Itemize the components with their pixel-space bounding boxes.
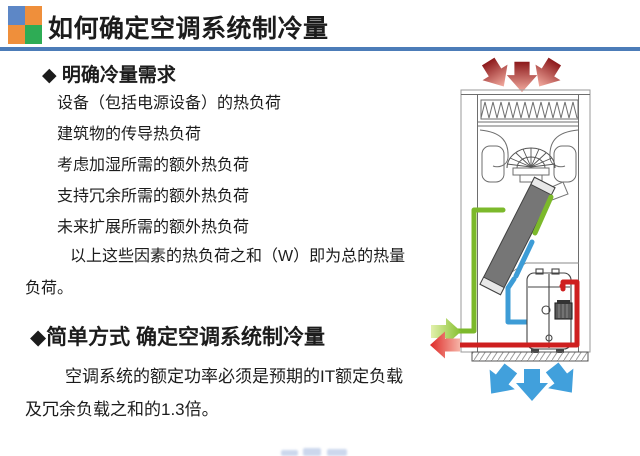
list-item: 未来扩展所需的额外热负荷 [57,212,427,243]
air-filter-icon [481,100,578,119]
section2-heading: ◆简单方式 确定空调系统制冷量 [30,321,325,351]
slide-title: 如何确定空调系统制冷量 [48,9,329,45]
list-item: 支持冗余所需的额外热负荷 [57,181,427,212]
logo-square-orange-top [25,6,42,25]
logo-square-orange-bottom [8,25,25,44]
crac-unit-diagram [420,55,605,415]
list-item: 设备（包括电源设备）的热负荷 [57,88,427,119]
slide-logo [8,6,42,44]
section1-heading: ◆ 明确冷量需求 [42,60,176,87]
logo-square-green [25,25,42,44]
list-item-summary: 以上这些因素的热负荷之和（W）即为总的热量负荷。 [25,241,413,305]
list-item: 考虑加湿所需的额外热负荷 [57,150,427,181]
unit-base [472,352,588,361]
section2-body: 空调系统的额定功率必须是预期的IT额定负载及冗余负载之和的1.3倍。 [25,360,413,426]
watermark-fragment [303,448,321,456]
logo-square-blue [8,6,25,25]
cold-air-out-arrows [479,358,585,404]
watermark-fragment [327,449,347,456]
list-item: 建筑物的传导热负荷 [57,119,427,150]
hot-air-in-arrows [476,55,568,94]
title-underline [0,47,640,51]
watermark-fragment [281,450,298,456]
blower-fan-icon [480,130,578,182]
cooling-demand-list: 设备（包括电源设备）的热负荷 建筑物的传导热负荷 考虑加湿所需的额外热负荷 支持… [57,88,427,243]
